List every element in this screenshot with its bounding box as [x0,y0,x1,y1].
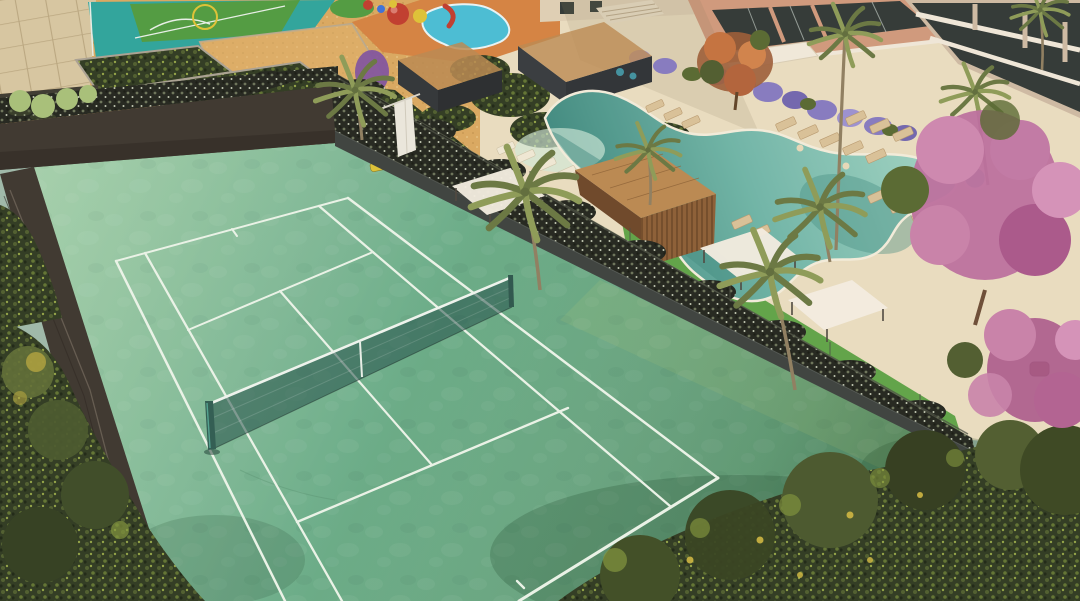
screenshot-root [0,0,1080,601]
light-wash-overlay [0,0,1080,601]
scene-render [0,0,1080,601]
